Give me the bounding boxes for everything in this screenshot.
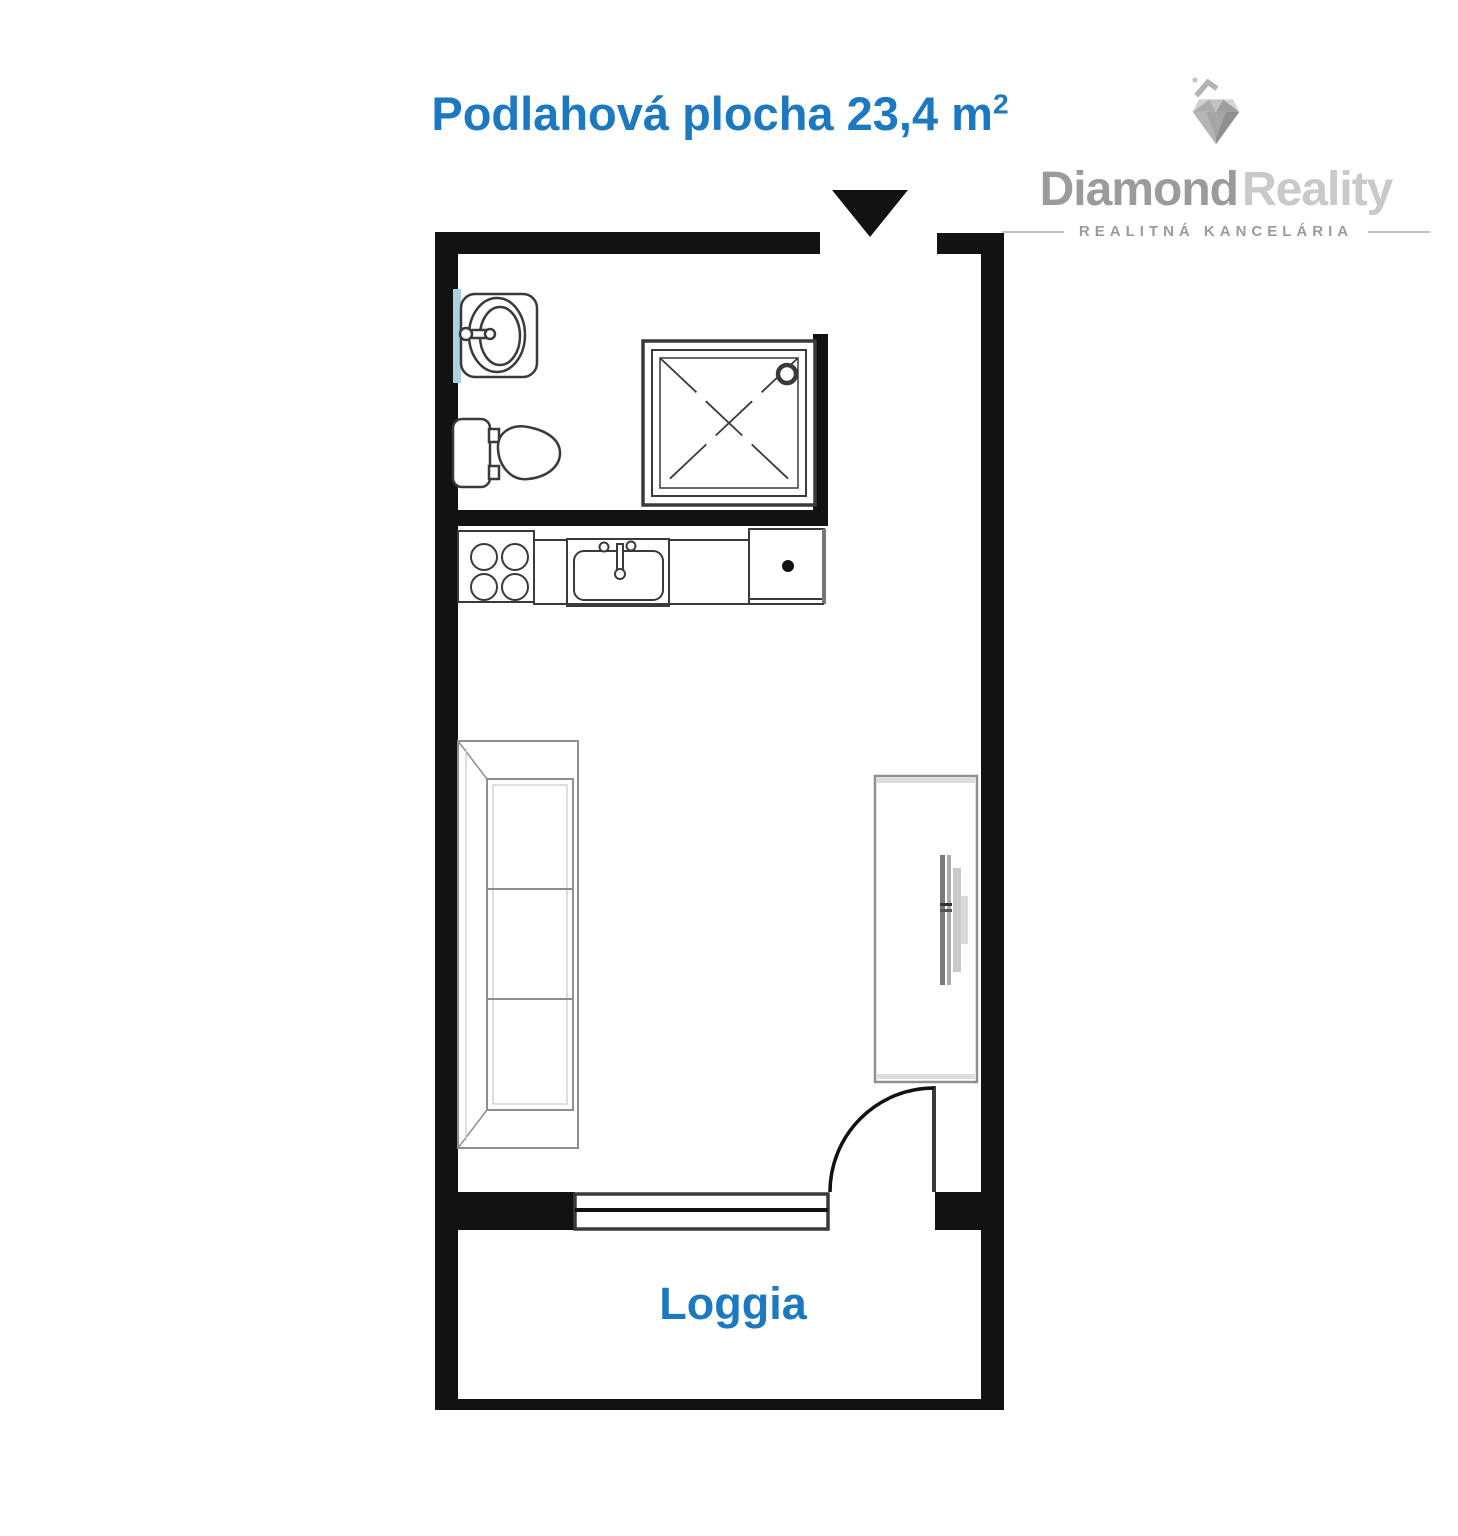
wall-bathroom-bottom bbox=[435, 510, 828, 526]
stove-icon bbox=[458, 531, 534, 602]
loggia-label: Loggia bbox=[470, 1278, 996, 1330]
wall-left bbox=[435, 232, 458, 1409]
balcony-window-icon bbox=[575, 1194, 828, 1229]
wall-top-left bbox=[435, 232, 820, 254]
sofa-icon bbox=[458, 741, 578, 1148]
wall-balcony-left bbox=[435, 1192, 575, 1230]
wall-right bbox=[981, 233, 1004, 1409]
wall-loggia-bottom bbox=[435, 1399, 1004, 1410]
shower-drain-icon bbox=[778, 365, 796, 383]
living-area bbox=[458, 741, 977, 1229]
kitchen-sink-icon bbox=[567, 539, 669, 606]
shower-icon bbox=[643, 341, 815, 505]
washbasin-icon bbox=[460, 294, 537, 377]
entrance-arrow-icon bbox=[832, 190, 908, 237]
wardrobe-icon bbox=[875, 776, 977, 1082]
kitchen bbox=[458, 529, 824, 606]
bathroom bbox=[453, 289, 815, 505]
floorplan-page: Podlahová plocha 23,4 m2 DiamondReality … bbox=[0, 0, 1458, 1536]
toilet-icon bbox=[453, 419, 560, 487]
balcony-door-icon bbox=[830, 1086, 934, 1192]
wall-balcony-stub bbox=[935, 1192, 1004, 1230]
appliance-knob bbox=[782, 560, 794, 572]
